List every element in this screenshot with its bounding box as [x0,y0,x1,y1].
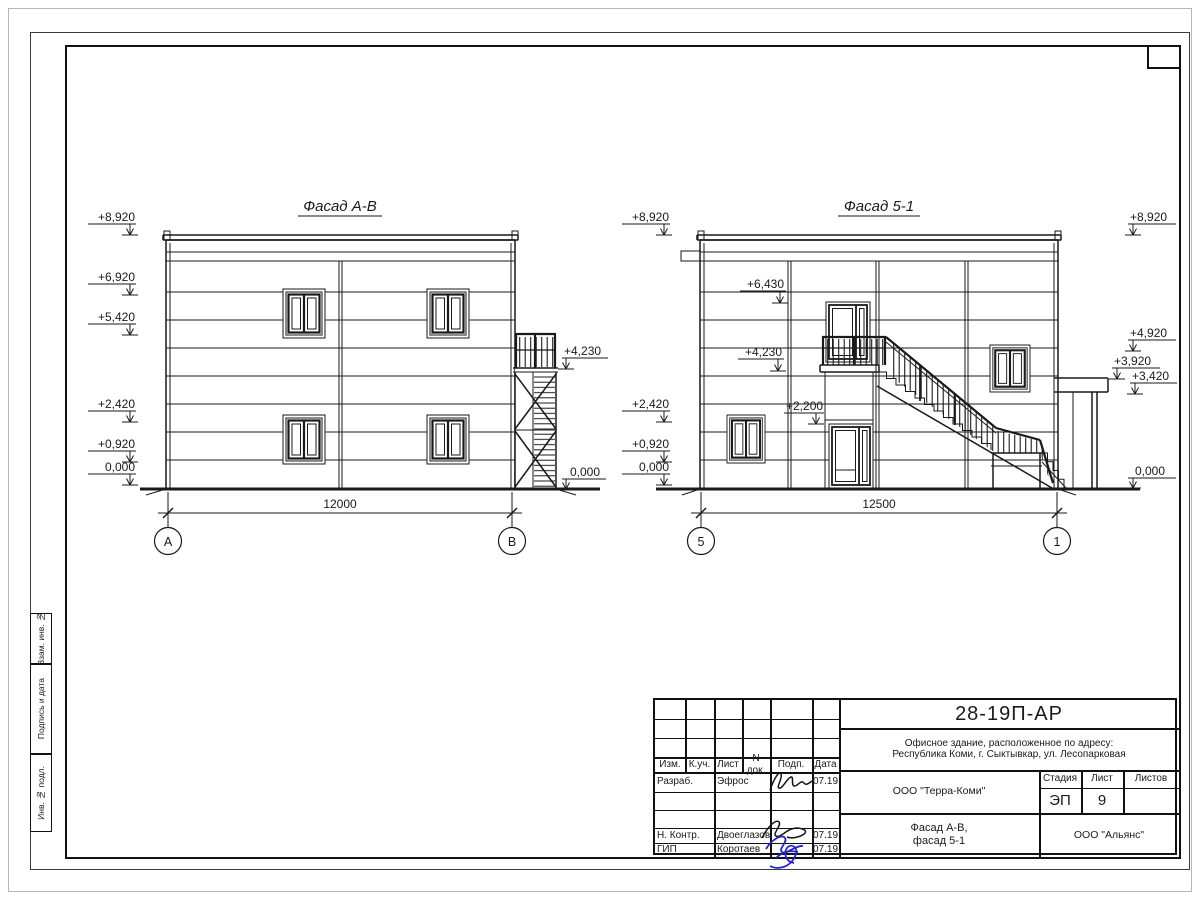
panel-joint [339,261,342,489]
elevation-mark: +5,420 [88,310,138,335]
svg-text:+4,230: +4,230 [564,344,601,358]
canopy-slab [1054,378,1108,392]
svg-text:+2,420: +2,420 [632,397,669,411]
window [283,415,325,464]
svg-text:+4,920: +4,920 [1130,326,1167,340]
svg-text:+0,920: +0,920 [632,437,669,451]
svg-text:+8,920: +8,920 [1130,210,1167,224]
dimension-51: 12500 [691,492,1067,527]
elevation-mark: +0,920 [88,437,138,462]
canopy [1054,378,1108,488]
elevation-mark: +4,920 [1125,326,1176,351]
staircase [877,337,1066,488]
door-lower [829,424,873,488]
elevation-mark: 0,000 [558,465,606,489]
gutter-outlet [681,251,700,261]
elevation-mark: +4,230 [738,345,786,371]
window [990,345,1030,392]
svg-text:0,000: 0,000 [1135,464,1165,478]
dimension-ab: 12000 [158,492,522,527]
parapet-cap [697,235,1061,240]
canopy-post [1092,392,1097,488]
panel-joints [788,261,968,489]
facade-ab-title: Фасад А-В [303,198,377,215]
elevation-mark: +8,920 [88,210,138,235]
fascia-band [166,252,515,261]
elevation-mark: 0,000 [88,460,138,485]
signature-developer [770,773,812,790]
elevation-mark: 0,000 [622,460,672,485]
svg-text:+8,920: +8,920 [98,210,135,224]
window [427,415,469,464]
fascia-band [700,252,1058,261]
svg-text:0,000: 0,000 [570,465,600,479]
svg-text:+3,920: +3,920 [1114,354,1151,368]
window [427,289,469,338]
svg-text:0,000: 0,000 [105,460,135,474]
svg-text:5: 5 [698,535,705,549]
elevation-mark: +4,230 [558,344,608,369]
parapet-cap [163,235,518,240]
svg-text:+6,430: +6,430 [747,277,784,291]
elevation-mark: +2,200 [784,399,824,424]
facades-drawing: Фасад А-В [0,0,1200,900]
axis-circle-1: 1 [1044,528,1071,555]
balcony-slab [820,365,879,372]
svg-text:+6,920: +6,920 [98,270,135,284]
signature-ncontrol [762,821,806,838]
svg-text:А: А [164,535,173,549]
svg-text:+2,200: +2,200 [786,399,823,413]
dim-value: 12000 [323,497,357,511]
elevation-mark: 0,000 [1125,464,1176,488]
window [283,289,325,338]
svg-text:+5,420: +5,420 [98,310,135,324]
signatures [762,773,812,868]
elevation-mark: +6,430 [740,277,788,303]
svg-text:В: В [508,535,516,549]
elevation-mark: +0,920 [622,437,672,462]
elevation-mark: +8,920 [622,210,672,235]
svg-text:+2,420: +2,420 [98,397,135,411]
svg-text:+0,920: +0,920 [98,437,135,451]
facade-ab: Фасад А-В [88,198,608,555]
svg-text:+4,230: +4,230 [745,345,782,359]
elevation-mark: +2,420 [622,397,672,422]
svg-text:1: 1 [1054,535,1061,549]
elevation-mark: +8,920 [1125,210,1176,235]
facade-51-title: Фасад 5-1 [844,198,914,215]
dim-value: 12500 [862,497,896,511]
svg-text:0,000: 0,000 [639,460,669,474]
drawing-sheet: Взам. инв. № Подпись и дата Инв. № подл. [0,0,1200,900]
svg-text:+8,920: +8,920 [632,210,669,224]
signature-gip-blue [766,837,803,868]
window [727,415,765,463]
facade-51: Фасад 5-1 [622,198,1177,555]
svg-text:+3,420: +3,420 [1132,369,1169,383]
elevation-mark: +3,420 [1127,369,1177,394]
axis-circle-a: А [155,528,182,555]
elevation-mark: +6,920 [88,270,138,295]
axis-circle-5: 5 [688,528,715,555]
axis-circle-b: В [499,528,526,555]
elevation-mark: +2,420 [88,397,138,422]
stair-tower [513,334,558,489]
